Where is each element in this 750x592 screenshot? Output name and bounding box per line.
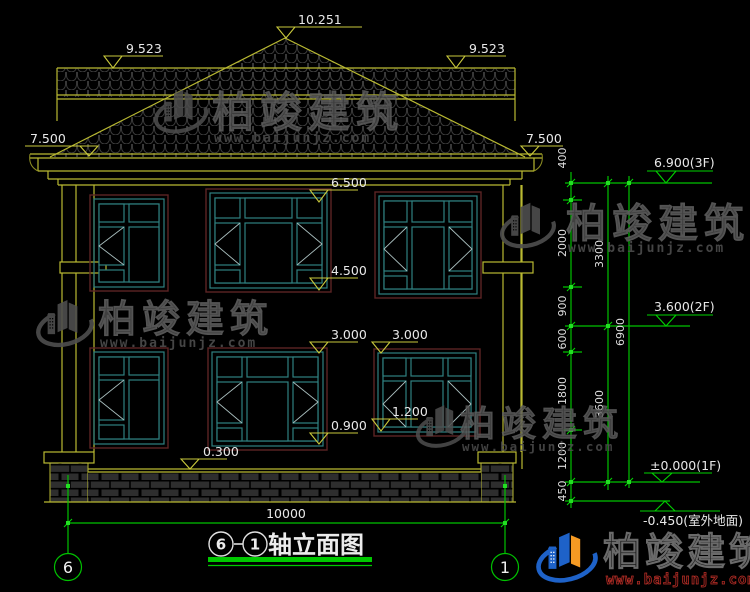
level-1f-window-top-left: 3.000 bbox=[331, 327, 367, 342]
cornice-molding bbox=[30, 154, 542, 185]
axis-number-left: 6 bbox=[63, 558, 73, 577]
level-eave-left: 7.500 bbox=[30, 131, 66, 146]
axis-bubble-left: 6 bbox=[55, 554, 82, 581]
watermark-url: www.baijunjz.com bbox=[606, 572, 750, 588]
window-2f-left bbox=[90, 195, 168, 291]
level-roof-band-right: 9.523 bbox=[469, 41, 505, 56]
cornice bbox=[30, 154, 543, 185]
elevation-marker-ground: -0.450(室外地面) bbox=[640, 501, 743, 528]
elevation-marker-plinth: 0.300 bbox=[181, 444, 239, 469]
watermark-center-low: 柏竣建筑 www.baijunjz.com bbox=[415, 404, 624, 454]
level-1f-window-sill: 0.900 bbox=[331, 418, 367, 433]
dim-900: 900 bbox=[556, 296, 569, 317]
elevation-drawing-canvas: 10.251 9.523 9.523 7.500 7.500 6.500 4.5… bbox=[0, 0, 750, 592]
title-axis-from: 6 bbox=[216, 536, 226, 554]
elevation-marker-1f-window-top-left: 3.000 bbox=[310, 327, 367, 353]
level-roof-band-left: 9.523 bbox=[126, 41, 162, 56]
window-2f-middle bbox=[206, 189, 331, 292]
watermark-brand: 柏竣建筑 bbox=[98, 297, 274, 341]
axis-bubble-right: 1 bbox=[492, 554, 519, 581]
dim-600: 600 bbox=[556, 329, 569, 350]
pilaster-left-base-cap bbox=[44, 452, 94, 463]
plinth bbox=[44, 469, 516, 502]
baijun-logo-icon bbox=[499, 203, 558, 252]
level-1f-window-top-right: 3.000 bbox=[392, 327, 428, 342]
dim-450: 450 bbox=[556, 481, 569, 502]
plinth-bricks bbox=[88, 472, 481, 502]
title-underline-thick bbox=[208, 557, 372, 562]
total-width-dim: 10000 bbox=[266, 506, 306, 521]
level-2f-window-sill: 4.500 bbox=[331, 263, 367, 278]
watermark-url: www.baijunjz.com bbox=[214, 131, 371, 146]
elevation-marker-roof-band-left: 9.523 bbox=[104, 41, 163, 68]
elevation-marker-1f: ±0.000(1F) bbox=[644, 458, 721, 482]
level-2f: 3.600(2F) bbox=[654, 299, 715, 314]
level-2f-window-top: 6.500 bbox=[331, 175, 367, 190]
window-1f-middle bbox=[208, 348, 327, 450]
window-1f-left bbox=[90, 348, 168, 448]
watermark-left: 柏竣建筑 www.baijunjz.com bbox=[35, 297, 274, 351]
pilaster-right-mid-cap bbox=[483, 262, 533, 273]
window-2f-right bbox=[375, 192, 481, 298]
watermark-right: 柏竣建筑 www.baijunjz.com bbox=[499, 201, 750, 256]
drawing-title: 6 1 轴立面图 bbox=[208, 531, 372, 566]
elevation-marker-3f: 6.900(3F) bbox=[647, 155, 715, 183]
axis-number-right: 1 bbox=[500, 558, 510, 577]
dim-6900: 6900 bbox=[614, 318, 627, 346]
level-3f: 6.900(3F) bbox=[654, 155, 715, 170]
elevation-marker-ridge: 10.251 bbox=[277, 12, 362, 38]
level-eave-right: 7.500 bbox=[526, 131, 562, 146]
level-1f-window-sill-right: 1.200 bbox=[392, 404, 428, 419]
dim-1800: 1800 bbox=[556, 377, 569, 405]
baijun-logo-icon bbox=[35, 300, 96, 350]
elevation-marker-roof-band-right: 9.523 bbox=[447, 41, 506, 68]
watermark-footer-logo: 柏竣建筑 www.baijunjz.com bbox=[535, 530, 750, 588]
pilaster-left-brick-pier bbox=[50, 463, 88, 502]
watermark-url: www.baijunjz.com bbox=[462, 439, 614, 454]
level-plinth: 0.300 bbox=[203, 444, 239, 459]
level-ground: -0.450(室外地面) bbox=[643, 513, 743, 528]
level-1f: ±0.000(1F) bbox=[650, 458, 721, 473]
page-title: 轴立面图 bbox=[268, 531, 364, 559]
elevation-marker-2f: 3.600(2F) bbox=[647, 299, 715, 326]
pilaster-right-brick-pier bbox=[481, 463, 513, 502]
title-axis-to: 1 bbox=[250, 536, 260, 554]
watermark-url: www.baijunjz.com bbox=[100, 336, 257, 351]
cad-elevation-screenshot: 10.251 9.523 9.523 7.500 7.500 6.500 4.5… bbox=[0, 0, 750, 592]
level-ridge: 10.251 bbox=[298, 12, 342, 27]
dim-400: 400 bbox=[556, 148, 569, 169]
baijun-logo-color-icon bbox=[535, 533, 600, 586]
watermark-url: www.baijunjz.com bbox=[568, 241, 725, 256]
watermark-brand: 柏竣建筑 bbox=[603, 530, 750, 574]
pilaster-left-shaft bbox=[76, 185, 94, 452]
pilaster-right bbox=[478, 185, 533, 502]
watermark-brand: 柏竣建筑 bbox=[212, 88, 404, 137]
